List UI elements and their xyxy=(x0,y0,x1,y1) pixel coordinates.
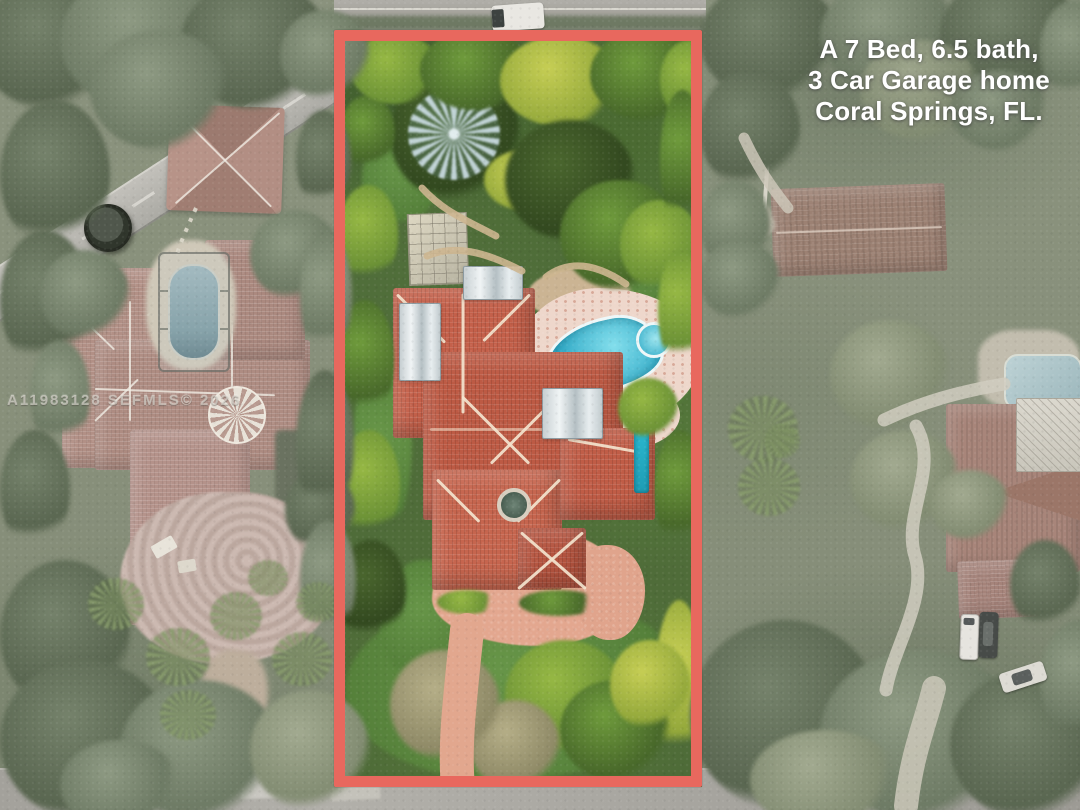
aerial-photo: A 7 Bed, 6.5 bath, 3 Car Garage home Cor… xyxy=(0,0,1080,810)
caption-line-3: Coral Springs, FL. xyxy=(778,96,1080,127)
mls-watermark: A11983128 SEFMLS© 2026 xyxy=(7,392,241,409)
property-boundary-box xyxy=(334,30,702,787)
caption-line-1: A 7 Bed, 6.5 bath, xyxy=(778,34,1080,65)
listing-caption: A 7 Bed, 6.5 bath, 3 Car Garage home Cor… xyxy=(778,34,1080,127)
caption-line-2: 3 Car Garage home xyxy=(778,65,1080,96)
